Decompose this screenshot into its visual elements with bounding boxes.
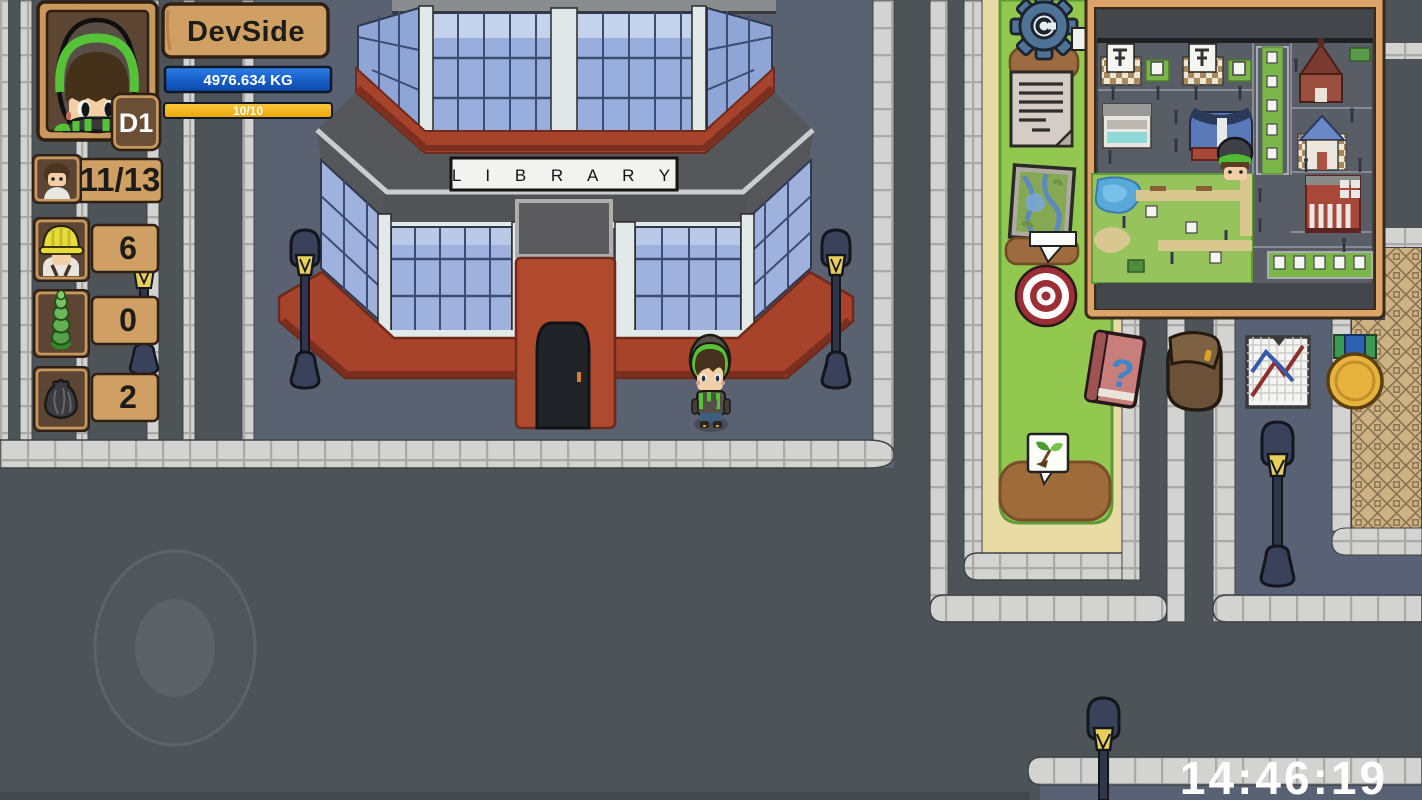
- svg-text:2: 2: [119, 379, 137, 415]
- svg-text:0: 0: [119, 302, 137, 338]
- svg-text:11/13: 11/13: [80, 161, 161, 198]
- svg-text:14:46:19: 14:46:19: [1180, 752, 1388, 800]
- svg-text:4976.634 KG: 4976.634 KG: [203, 72, 292, 89]
- svg-text:10/10: 10/10: [233, 104, 263, 118]
- svg-text:L I B R A R Y: L I B R A R Y: [452, 166, 680, 185]
- svg-text:DevSide: DevSide: [187, 16, 305, 48]
- svg-text:6: 6: [119, 230, 137, 266]
- svg-text:D1: D1: [119, 108, 154, 138]
